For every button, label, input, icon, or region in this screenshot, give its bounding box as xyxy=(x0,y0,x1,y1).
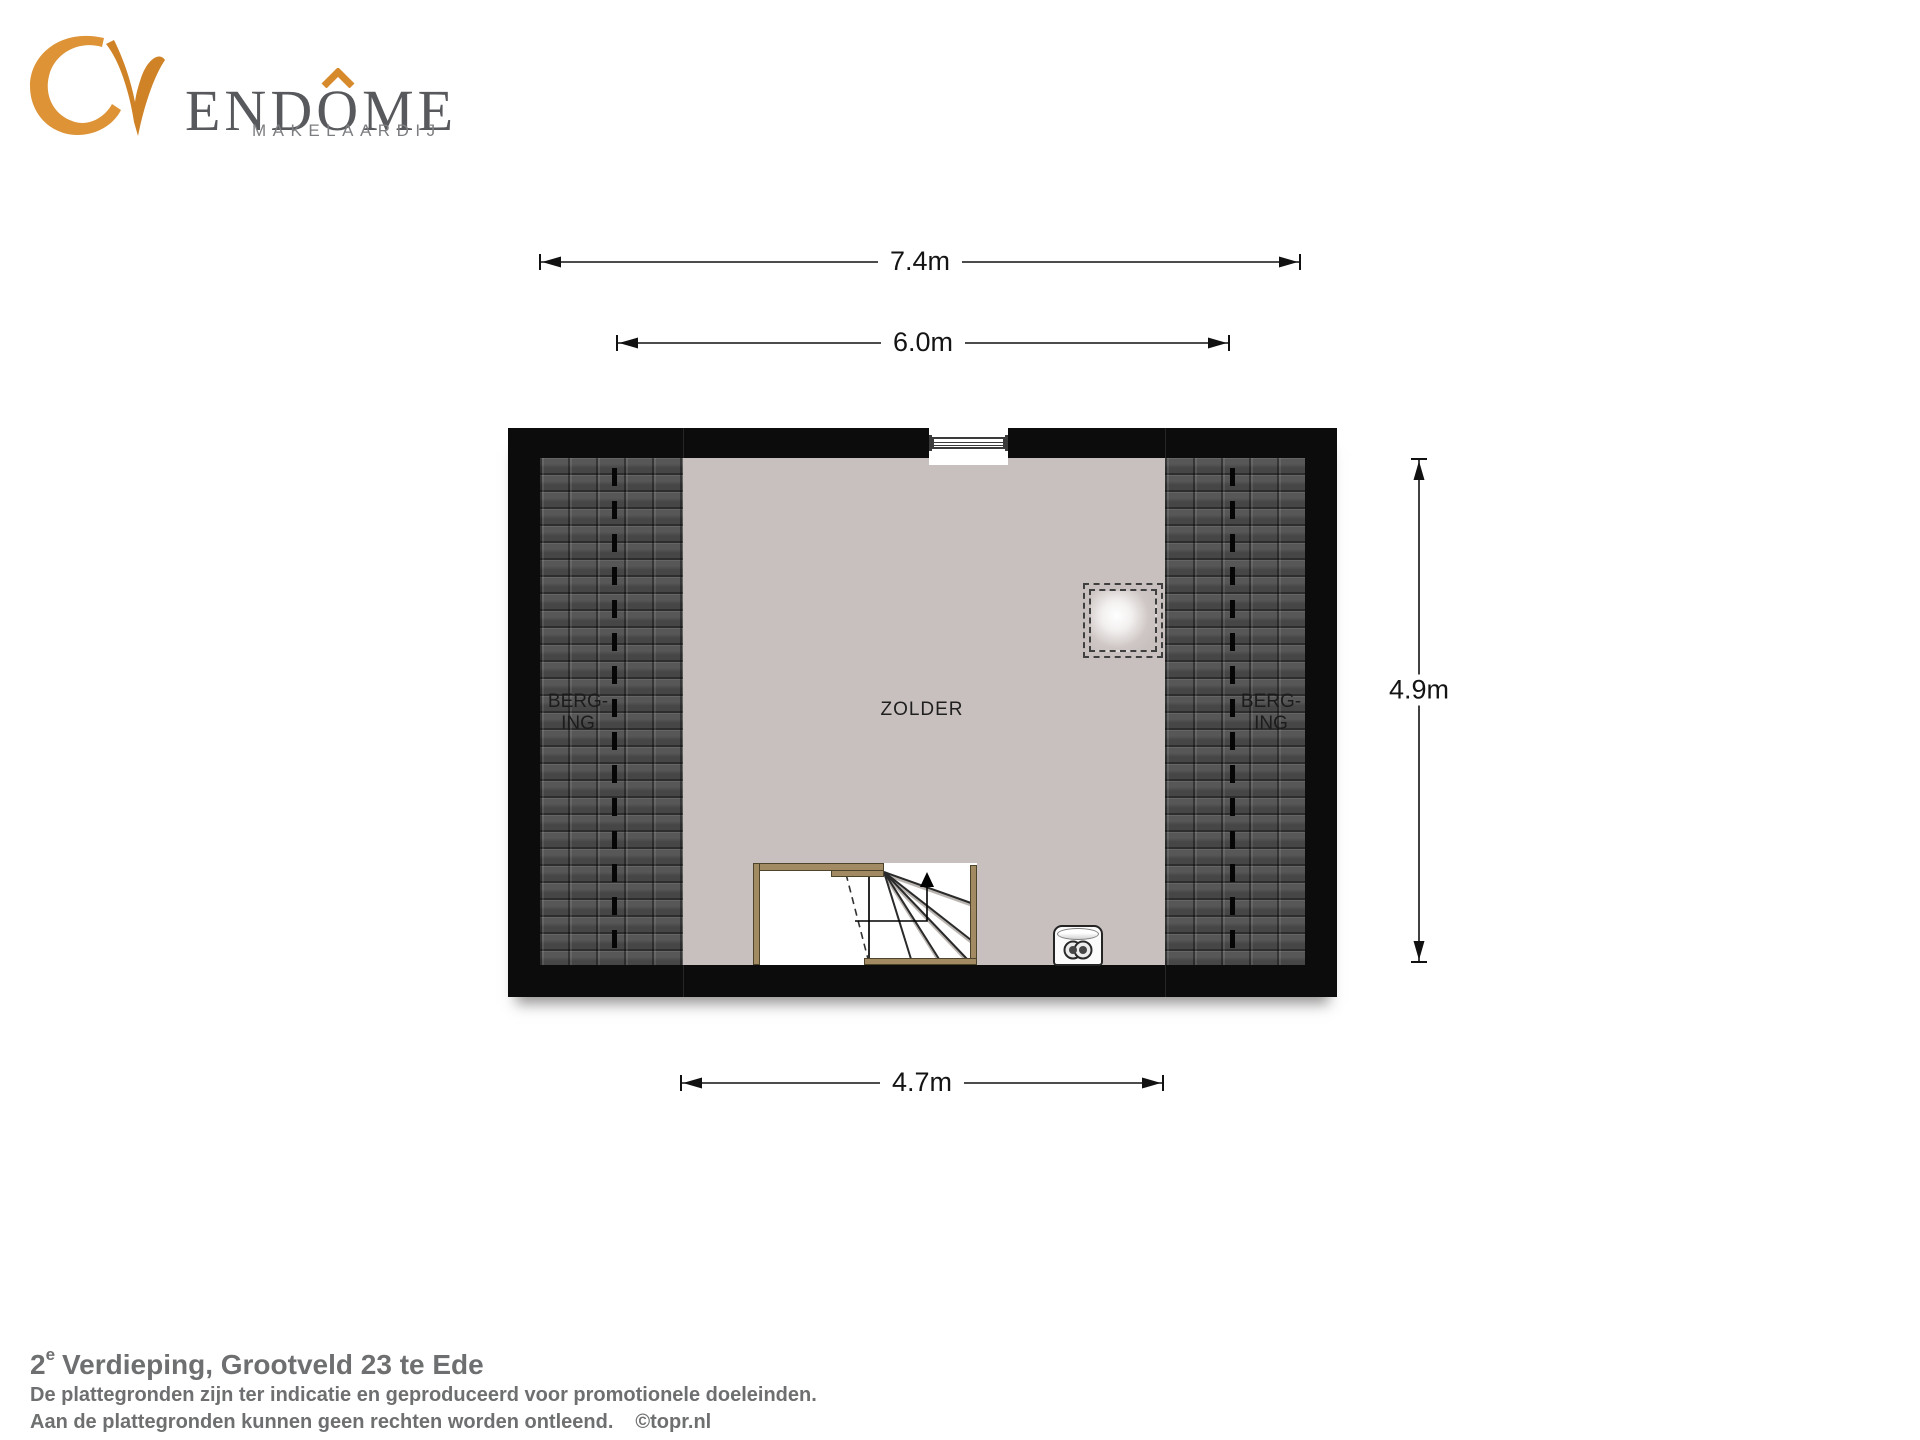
logo-subtitle: MAKELAARDIJ xyxy=(252,121,442,141)
window-icon xyxy=(932,437,1005,449)
wall-seam xyxy=(1165,428,1166,458)
stair-edge xyxy=(864,958,977,965)
staircase xyxy=(753,863,977,965)
window-jamb-right xyxy=(1005,435,1008,451)
stair-treads-icon xyxy=(753,863,977,965)
boiler-vents-icon xyxy=(1055,929,1101,964)
floor-title-text: Verdieping, Grootveld 23 te Ede xyxy=(62,1349,484,1380)
berging-line2: ING xyxy=(1241,713,1301,735)
room-label-zolder: ZOLDER xyxy=(880,699,963,721)
disclaimer-line1: De plattegronden zijn ter indicatie en g… xyxy=(30,1382,817,1409)
window-jamb-left xyxy=(929,435,932,451)
stair-edge xyxy=(970,865,977,965)
dimension-label: 4.7m xyxy=(880,1067,964,1098)
circumflex-accent-icon xyxy=(319,68,357,88)
floorplan-page: ENDOME MAKELAARDIJ 7.4m 6.0m xyxy=(0,0,1920,1440)
headroom-dashed-line-right xyxy=(1230,468,1235,956)
berging-line1: BERG- xyxy=(1241,691,1301,713)
floorplan: ZOLDER BERG- ING BERG- ING xyxy=(508,428,1337,997)
window-opening xyxy=(929,428,1008,465)
berging-line1: BERG- xyxy=(548,691,608,713)
footer: 2eVerdieping, Grootveld 23 te Ede De pla… xyxy=(30,1338,817,1436)
dimension-floor-width: 4.7m xyxy=(680,1074,1164,1092)
dimension-label: 7.4m xyxy=(878,246,962,277)
room-label-berging-right: BERG- ING xyxy=(1241,691,1301,735)
dimension-inner-width: 6.0m xyxy=(616,334,1230,352)
headroom-dashed-line-left xyxy=(612,468,617,956)
vendome-logo: ENDOME MAKELAARDIJ xyxy=(26,28,496,168)
disclaimer-line2: Aan de plattegronden kunnen geen rechten… xyxy=(30,1409,817,1436)
floor-number: 2 xyxy=(30,1349,46,1380)
wall-seam xyxy=(1165,965,1166,997)
floor-number-suffix: e xyxy=(46,1345,55,1364)
vendome-v-swash-icon xyxy=(26,30,176,152)
skylight-glass xyxy=(1089,589,1157,652)
dimension-arrow-line xyxy=(1410,458,1428,963)
wall-seam xyxy=(683,428,684,458)
dimension-height: 4.9m xyxy=(1410,458,1428,963)
floor-title: 2eVerdieping, Grootveld 23 te Ede xyxy=(30,1338,817,1382)
wall-seam xyxy=(683,965,684,997)
stair-edge xyxy=(753,863,760,965)
dimension-outer-width: 7.4m xyxy=(539,253,1301,271)
room-label-berging-left: BERG- ING xyxy=(548,691,608,735)
boiler-unit xyxy=(1053,925,1103,966)
dimension-label: 6.0m xyxy=(881,327,965,358)
skylight xyxy=(1083,583,1163,658)
stair-edge xyxy=(831,870,884,877)
berging-line2: ING xyxy=(548,713,608,735)
disclaimer-text: Aan de plattegronden kunnen geen rechten… xyxy=(30,1411,613,1433)
dimension-label: 4.9m xyxy=(1377,675,1461,706)
copyright-credit: ©topr.nl xyxy=(635,1411,711,1433)
